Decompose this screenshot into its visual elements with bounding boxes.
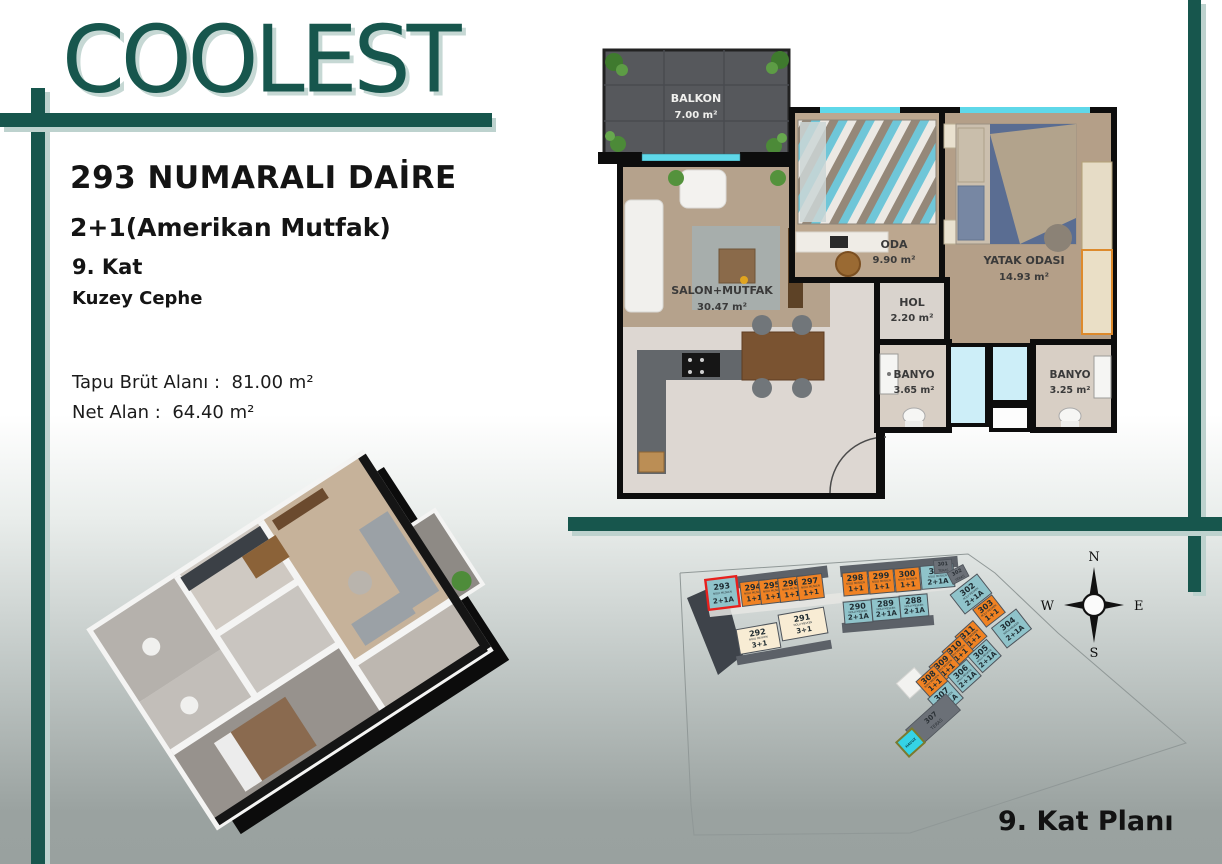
coffee-table	[719, 249, 755, 283]
right-vertical-bar	[1188, 0, 1201, 592]
gross-area-value: 81.00 m²	[232, 372, 314, 393]
gross-area-line: Tapu Brüt Alanı : 81.00 m²	[72, 372, 314, 393]
apartment-facade: Kuzey Cephe	[72, 288, 202, 309]
laptop	[830, 236, 848, 248]
hol-label: HOL	[899, 296, 925, 309]
site-unit-293[interactable]: 293NOLU MESKEN2+1A	[705, 576, 739, 610]
left-vertical-bar	[31, 88, 45, 864]
oda-window-strip	[820, 107, 900, 113]
svg-text:301: 301	[937, 561, 948, 568]
site-unit-289[interactable]: 289NOLU MESKEN2+1A	[871, 597, 901, 621]
desk-chair	[836, 252, 860, 276]
compass-w: W	[1041, 599, 1055, 614]
apartment-type: 2+1(Amerikan Mutfak)	[70, 213, 391, 242]
svg-text:1+1: 1+1	[848, 584, 864, 593]
net-area-value: 64.40 m²	[172, 402, 254, 423]
balcony-window-strip	[642, 154, 740, 161]
compass-icon: N S W E	[1041, 550, 1144, 661]
sink	[639, 452, 664, 472]
net-area-label: Net Alan :	[72, 402, 161, 423]
svg-text:1+1: 1+1	[900, 580, 916, 589]
banyo-left-room: BANYO 3.65 m²	[877, 342, 949, 430]
oda-area: 9.90 m²	[873, 255, 916, 266]
bedroom-rug	[1044, 224, 1072, 252]
banyo-left-area: 3.65 m²	[894, 385, 935, 396]
yatak-label: YATAK ODASI	[982, 254, 1064, 267]
bath-sink	[1094, 356, 1111, 398]
svg-text:1+1: 1+1	[874, 582, 890, 591]
banyo-right-label: BANYO	[1049, 369, 1090, 381]
shower-right	[991, 345, 1029, 402]
banyo-right-area: 3.25 m²	[1050, 385, 1091, 396]
net-area-line: Net Alan : 64.40 m²	[72, 402, 254, 423]
plant-icon	[668, 170, 684, 186]
shower-left	[949, 345, 987, 425]
yatak-odasi-room: YATAK ODASI 14.93 m²	[942, 107, 1114, 355]
site-unit-300[interactable]: 300NOLU MESKEN1+1	[894, 567, 921, 592]
site-unit-288[interactable]: 288NOLU MESKEN2+1A	[899, 594, 929, 618]
sofa	[625, 200, 663, 312]
compass-n: N	[1088, 550, 1099, 565]
hol-room: HOL 2.20 m²	[877, 280, 947, 342]
plant-icon	[770, 170, 786, 186]
floor-plan-2d: BALKON 7.00 m² SAL	[592, 22, 1132, 512]
site-unit-292[interactable]: 292NOLU MESKEN3+1	[736, 623, 781, 655]
site-unit-299[interactable]: 299NOLU MESKEN1+1	[868, 569, 895, 594]
site-unit-298[interactable]: 298NOLU MESKEN1+1	[842, 571, 869, 596]
apartment-title: 293 NUMARALI DAİRE	[70, 160, 457, 196]
brochure-page: COOLEST 293 NUMARALI DAİRE 2+1(Amerikan …	[0, 0, 1222, 864]
floor-plan-3d	[55, 445, 525, 850]
site-plan: 294NOLU MESKEN1+1295NOLU MESKEN1+1296NOL…	[650, 545, 1210, 845]
banyo-left-label: BANYO	[893, 369, 934, 381]
site-unit-297[interactable]: 297NOLU MESKEN1+1	[797, 574, 825, 601]
balcony-room: BALKON 7.00 m²	[598, 50, 796, 164]
armchair	[680, 170, 726, 208]
oda-room: ODA 9.90 m²	[792, 107, 942, 280]
nightstand	[944, 124, 957, 148]
balcony-area: 7.00 m²	[675, 110, 718, 121]
left-horizontal-bar	[0, 113, 492, 127]
coolest-logo: COOLEST	[62, 6, 458, 114]
salon-label: SALON+MUTFAK	[671, 284, 773, 297]
banyo-right-room: BANYO 3.25 m²	[1033, 342, 1114, 430]
gross-area-label: Tapu Brüt Alanı :	[72, 372, 220, 393]
compass-s: S	[1090, 646, 1099, 661]
hol-area: 2.20 m²	[891, 313, 934, 324]
floor-key-plan-title: 9. Kat Planı	[998, 806, 1174, 837]
yatak-area: 14.93 m²	[999, 272, 1049, 283]
nightstand	[944, 220, 957, 244]
dining-table	[742, 332, 824, 380]
salon-area: 30.47 m²	[697, 302, 747, 313]
compass-e: E	[1134, 599, 1144, 614]
yatak-window-strip	[960, 107, 1090, 113]
apartment-floor: 9. Kat	[72, 255, 142, 279]
site-unit-291[interactable]: 291NOLU MESKEN3+1	[778, 607, 828, 641]
site-unit-290[interactable]: 290NOLU MESKEN2+1A	[843, 600, 873, 624]
right-horizontal-bar	[568, 517, 1222, 531]
balcony-label: BALKON	[671, 92, 722, 105]
oda-label: ODA	[881, 238, 908, 251]
